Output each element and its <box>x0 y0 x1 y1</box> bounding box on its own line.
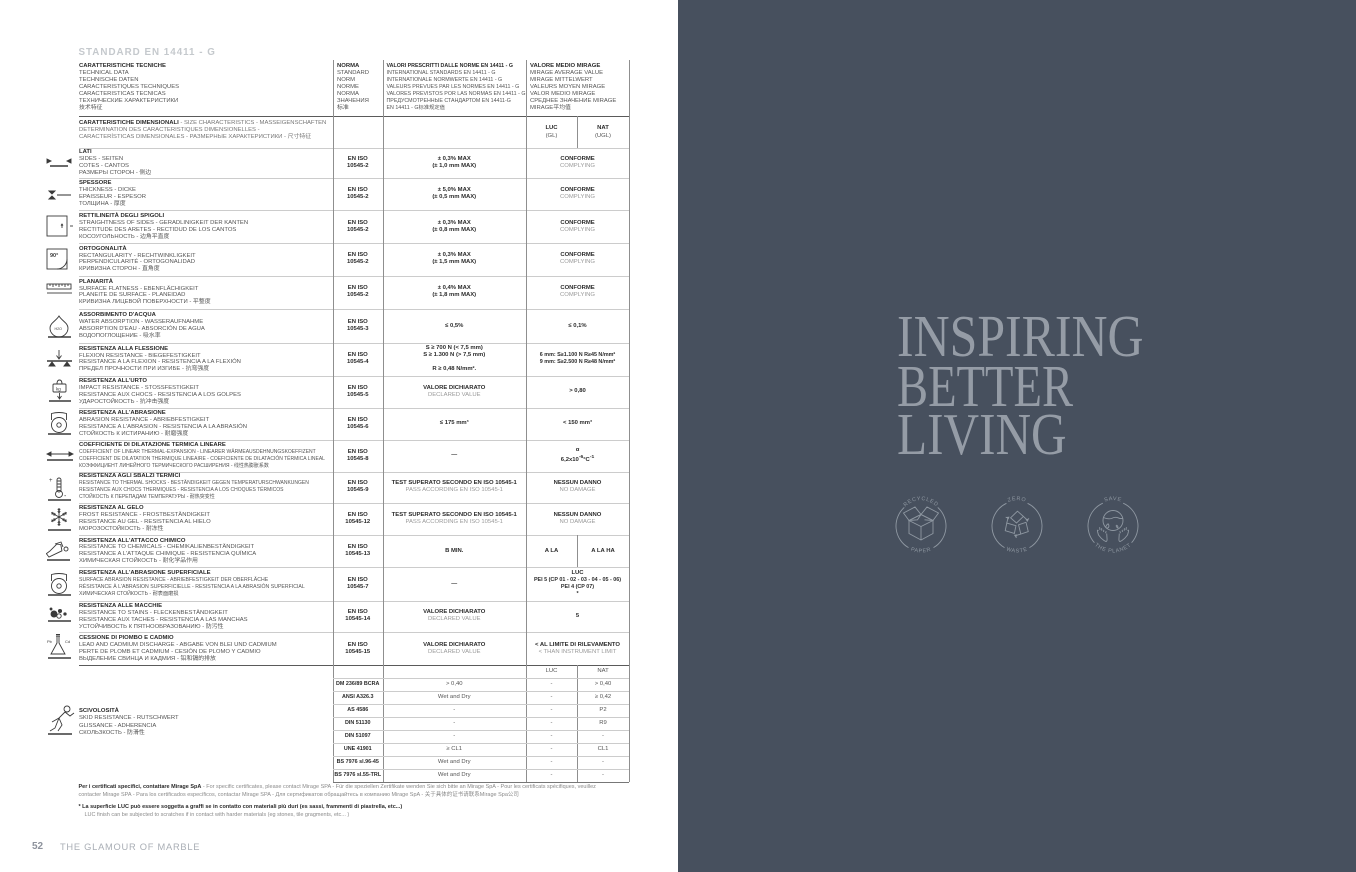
svg-text:Pb: Pb <box>47 639 53 644</box>
svg-text:H2O: H2O <box>55 327 63 331</box>
svg-text:PAPER: PAPER <box>910 547 932 555</box>
svg-text:THE PLANET: THE PLANET <box>1093 542 1132 554</box>
svg-text:90°: 90° <box>50 253 58 259</box>
svg-text:kg: kg <box>56 387 61 392</box>
svg-text:Cd: Cd <box>65 639 70 644</box>
svg-text:RECYCLED: RECYCLED <box>903 496 940 508</box>
svg-text:-: - <box>64 493 67 500</box>
svg-text:SAVE: SAVE <box>1104 496 1123 504</box>
svg-text:WASTE: WASTE <box>1005 546 1028 554</box>
svg-text:+: + <box>49 478 53 484</box>
svg-text:ZERO: ZERO <box>1007 496 1027 504</box>
